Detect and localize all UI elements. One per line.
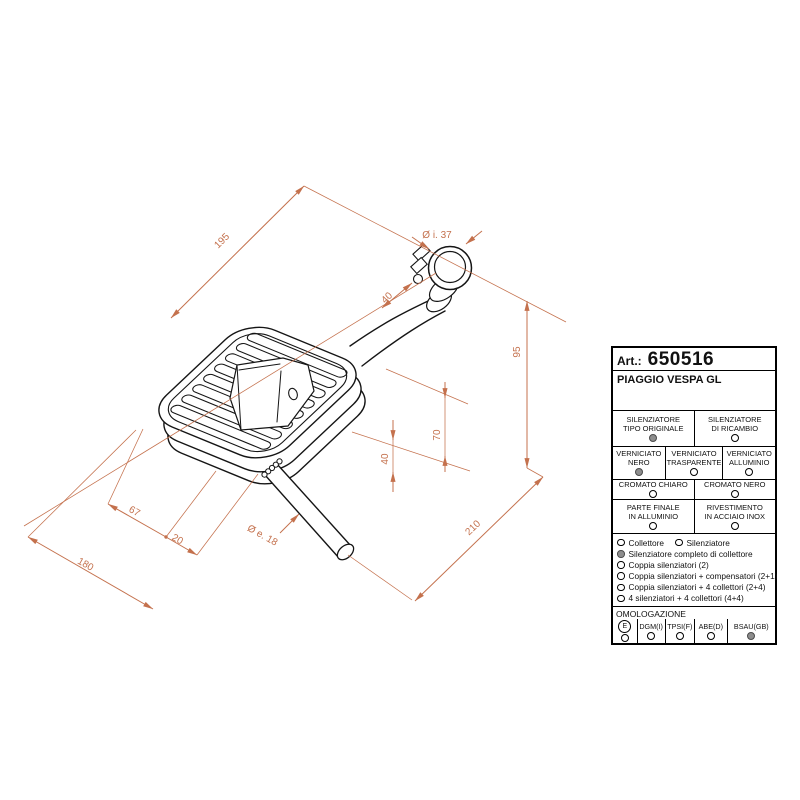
option-dot bbox=[617, 561, 625, 569]
dim-outlet-diameter: Ø e. 18 bbox=[245, 523, 279, 549]
option-verniciato-nero: VERNICIATO NERO bbox=[613, 447, 665, 479]
dim-20: 20 bbox=[170, 532, 185, 547]
kit-line-3: Coppia silenziatori (2) bbox=[617, 559, 771, 570]
option-dot bbox=[731, 522, 739, 530]
kit-line-4: Coppia silenziatori + compensatori (2+1) bbox=[617, 571, 771, 582]
option-verniciato-trasparente: VERNICIATO TRASPARENTE bbox=[665, 447, 723, 479]
homologation-row: OMOLOGAZIONE E DGM(I) TPSI(F) ABE(D) BSA… bbox=[613, 607, 775, 643]
option-verniciato-alluminio: VERNICIATO ALLUMINIO bbox=[722, 447, 775, 479]
dim-line-180 bbox=[28, 537, 153, 609]
article-number: 650516 bbox=[648, 349, 714, 371]
homologation-bsau: BSAU(GB) bbox=[727, 619, 775, 643]
option-dot bbox=[621, 634, 629, 642]
option-silenziatore-ricambio: SILENZIATORE DI RICAMBIO bbox=[694, 411, 776, 446]
option-dot bbox=[617, 595, 625, 603]
option-dot bbox=[617, 550, 625, 558]
paint-row: VERNICIATO NERO VERNICIATO TRASPARENTE V… bbox=[613, 447, 775, 480]
dim-40-low: 40 bbox=[380, 453, 391, 465]
article-row: Art.: 650516 bbox=[613, 348, 775, 371]
option-dot bbox=[649, 434, 657, 442]
page: 195 Ø i. 37 40 95 70 40 67 20 Ø e. 18 18… bbox=[0, 0, 800, 800]
circled-e-icon: E bbox=[618, 620, 631, 633]
leader-inlet-dia-right bbox=[466, 231, 482, 244]
kit-line-5: Coppia silenziatori + 4 collettori (2+4) bbox=[617, 582, 771, 593]
option-cromato-chiaro: CROMATO CHIARO bbox=[613, 480, 694, 499]
kit-line-1: Collettore Silenziatore bbox=[617, 537, 771, 548]
option-dot bbox=[635, 468, 643, 476]
dim-95: 95 bbox=[512, 346, 523, 358]
kit-options-row: Collettore Silenziatore Silenziatore com… bbox=[613, 534, 775, 607]
dim-67: 67 bbox=[127, 504, 142, 519]
option-dot bbox=[690, 468, 698, 476]
option-dot bbox=[675, 539, 683, 547]
tail-pipe bbox=[262, 459, 357, 563]
leader-outlet-dia bbox=[280, 514, 299, 533]
option-dot bbox=[707, 632, 715, 640]
option-dot bbox=[745, 468, 753, 476]
homologation-abe: ABE(D) bbox=[694, 619, 727, 643]
dim-195: 195 bbox=[212, 231, 232, 251]
option-dot bbox=[676, 632, 684, 640]
dim-inlet-diameter: Ø i. 37 bbox=[422, 230, 452, 241]
dim-line-210 bbox=[415, 477, 543, 601]
silencer-type-row: SILENZIATORE TIPO ORIGINALE SILENZIATORE… bbox=[613, 411, 775, 447]
option-rivestimento-inox: RIVESTIMENTO IN ACCIAIO INOX bbox=[694, 500, 776, 533]
option-dot bbox=[731, 490, 739, 498]
model-row: PIAGGIO VESPA GL bbox=[613, 371, 775, 411]
spec-table: Art.: 650516 PIAGGIO VESPA GL SILENZIATO… bbox=[611, 346, 777, 645]
option-dot bbox=[617, 584, 625, 592]
option-dot bbox=[649, 522, 657, 530]
homologation-dgm: DGM(I) bbox=[637, 619, 665, 643]
option-dot bbox=[617, 539, 625, 547]
article-label: Art.: bbox=[617, 354, 642, 368]
muffler-body-group bbox=[145, 244, 472, 563]
dim-70: 70 bbox=[432, 429, 443, 441]
option-dot bbox=[647, 632, 655, 640]
dim-40-inlet: 40 bbox=[379, 290, 395, 306]
model-name: PIAGGIO VESPA GL bbox=[617, 374, 722, 407]
kit-line-6: 4 silenziatori + 4 collettori (4+4) bbox=[617, 593, 771, 604]
option-parte-finale-alluminio: PARTE FINALE IN ALLUMINIO bbox=[613, 500, 694, 533]
option-dot bbox=[747, 632, 755, 640]
chrome-row: CROMATO CHIARO CROMATO NERO bbox=[613, 480, 775, 500]
option-dot bbox=[731, 434, 739, 442]
option-dot bbox=[617, 572, 625, 580]
dim-210: 210 bbox=[463, 518, 483, 538]
dim-180: 180 bbox=[75, 556, 95, 574]
homologation-e: E bbox=[613, 619, 637, 643]
kit-line-2: Silenziatore completo di collettore bbox=[617, 548, 771, 559]
option-cromato-nero: CROMATO NERO bbox=[694, 480, 776, 499]
option-dot bbox=[649, 490, 657, 498]
homologation-tpsi: TPSI(F) bbox=[665, 619, 694, 643]
option-silenziatore-originale: SILENZIATORE TIPO ORIGINALE bbox=[613, 411, 694, 446]
dim-line-195 bbox=[171, 186, 304, 318]
homologation-title: OMOLOGAZIONE bbox=[613, 607, 775, 619]
material-row: PARTE FINALE IN ALLUMINIO RIVESTIMENTO I… bbox=[613, 500, 775, 534]
